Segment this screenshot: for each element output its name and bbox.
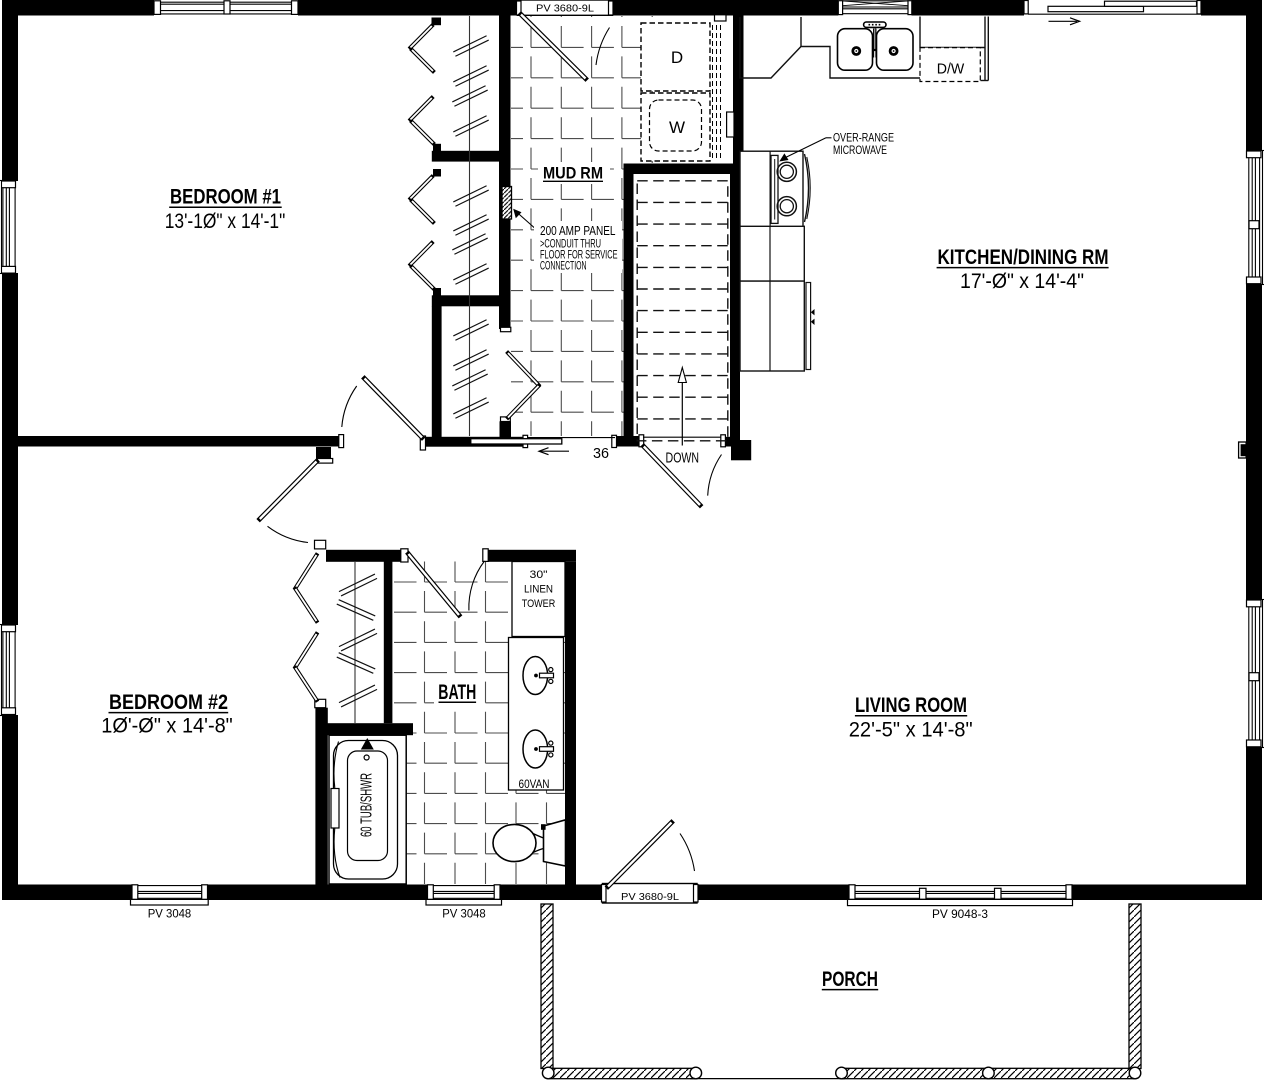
svg-text:TOWER: TOWER	[522, 598, 556, 610]
svg-text:60VAN: 60VAN	[519, 777, 550, 791]
svg-text:BATH: BATH	[438, 681, 476, 704]
svg-text:CONNECTION: CONNECTION	[540, 260, 587, 273]
svg-text:PV 3680-9L: PV 3680-9L	[621, 891, 679, 903]
svg-text:D/W: D/W	[937, 61, 965, 78]
svg-text:PV 3048: PV 3048	[442, 907, 486, 921]
svg-text:DOWN: DOWN	[666, 450, 700, 467]
svg-text:PV 3048: PV 3048	[148, 907, 192, 921]
svg-text:BEDROOM #2: BEDROOM #2	[109, 691, 228, 714]
svg-text:17'-Ø" x 14'-4": 17'-Ø" x 14'-4"	[960, 270, 1084, 293]
svg-text:36: 36	[593, 446, 609, 462]
svg-text:W: W	[669, 118, 685, 137]
svg-text:PORCH: PORCH	[822, 968, 878, 991]
svg-text:200 AMP PANEL: 200 AMP PANEL	[540, 223, 616, 238]
svg-text:60 TUB/SHWR: 60 TUB/SHWR	[359, 773, 376, 837]
svg-text:30": 30"	[530, 569, 548, 581]
svg-text:MICROWAVE: MICROWAVE	[833, 143, 887, 157]
svg-text:BEDROOM #1: BEDROOM #1	[170, 186, 281, 209]
svg-text:D: D	[671, 48, 683, 67]
svg-text:LIVING ROOM: LIVING ROOM	[855, 694, 967, 717]
svg-text:1Ø'-Ø" x 14'-8": 1Ø'-Ø" x 14'-8"	[101, 714, 233, 737]
svg-text:13'-1Ø" x 14'-1": 13'-1Ø" x 14'-1"	[165, 210, 286, 233]
svg-text:PV 9048-3: PV 9048-3	[932, 907, 988, 921]
svg-text:LINEN: LINEN	[524, 584, 553, 596]
svg-text:MUD RM: MUD RM	[543, 164, 603, 183]
svg-text:KITCHEN/DINING RM: KITCHEN/DINING RM	[938, 246, 1109, 269]
svg-text:PV 3680-9L: PV 3680-9L	[536, 2, 594, 14]
svg-text:22'-5" x 14'-8": 22'-5" x 14'-8"	[849, 719, 973, 742]
